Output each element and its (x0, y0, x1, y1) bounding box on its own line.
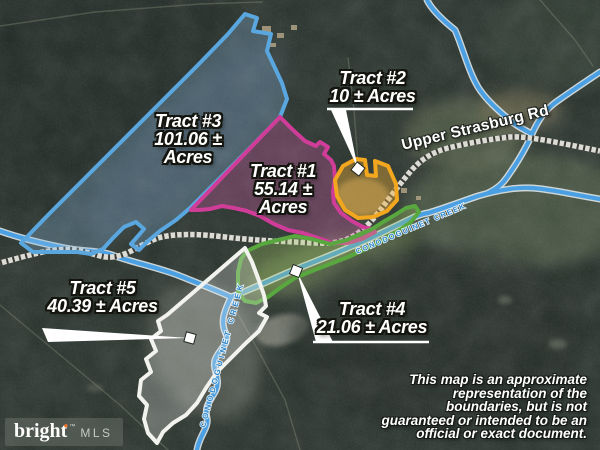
aerial-tract-map: CONODOGUINET CREEK CONODOGUINET CREEK Tr… (0, 0, 600, 450)
tract-2-name: Tract #2 (300, 69, 445, 87)
tract-3-label: Tract #3 101.06 ± Acres (118, 112, 258, 166)
logo-mls-text: MLS (80, 426, 112, 440)
tract-2-label: Tract #2 10 ± Acres (300, 69, 445, 105)
tract-2-acres: 10 ± Acres (300, 87, 445, 105)
logo-spark-icon: ● (64, 416, 69, 436)
bright-mls-logo: bright● ™ MLS (5, 418, 123, 446)
disclaimer-line: representation of the (381, 387, 587, 401)
tract-1-acres-unit: Acres (213, 198, 353, 216)
bright-mls-wordmark: bright● (14, 421, 67, 441)
tract-5-label: Tract #5 40.39 ± Acres (25, 279, 180, 315)
tract-5-name: Tract #5 (25, 279, 180, 297)
tract-4-name: Tract #4 (292, 300, 452, 318)
tract-3-acres: 101.06 ± (118, 130, 258, 148)
tract-1-acres: 55.14 ± (213, 180, 353, 198)
disclaimer-text: This map is an approximate representatio… (381, 373, 587, 441)
tract-3-name: Tract #3 (118, 112, 258, 130)
tract-5-acres: 40.39 ± Acres (25, 297, 180, 315)
disclaimer-line: guaranteed or intended to be an (381, 414, 587, 428)
tract-4-label: Tract #4 21.06 ± Acres (292, 300, 452, 336)
disclaimer-line: official or exact document. (381, 427, 587, 441)
tract-1-label: Tract #1 55.14 ± Acres (213, 162, 353, 216)
tract-1-name: Tract #1 (213, 162, 353, 180)
disclaimer-line: boundaries, but is not (381, 400, 587, 414)
tract-4-acres: 21.06 ± Acres (292, 318, 452, 336)
trademark-symbol: ™ (69, 424, 75, 430)
disclaimer-line: This map is an approximate (381, 373, 587, 387)
